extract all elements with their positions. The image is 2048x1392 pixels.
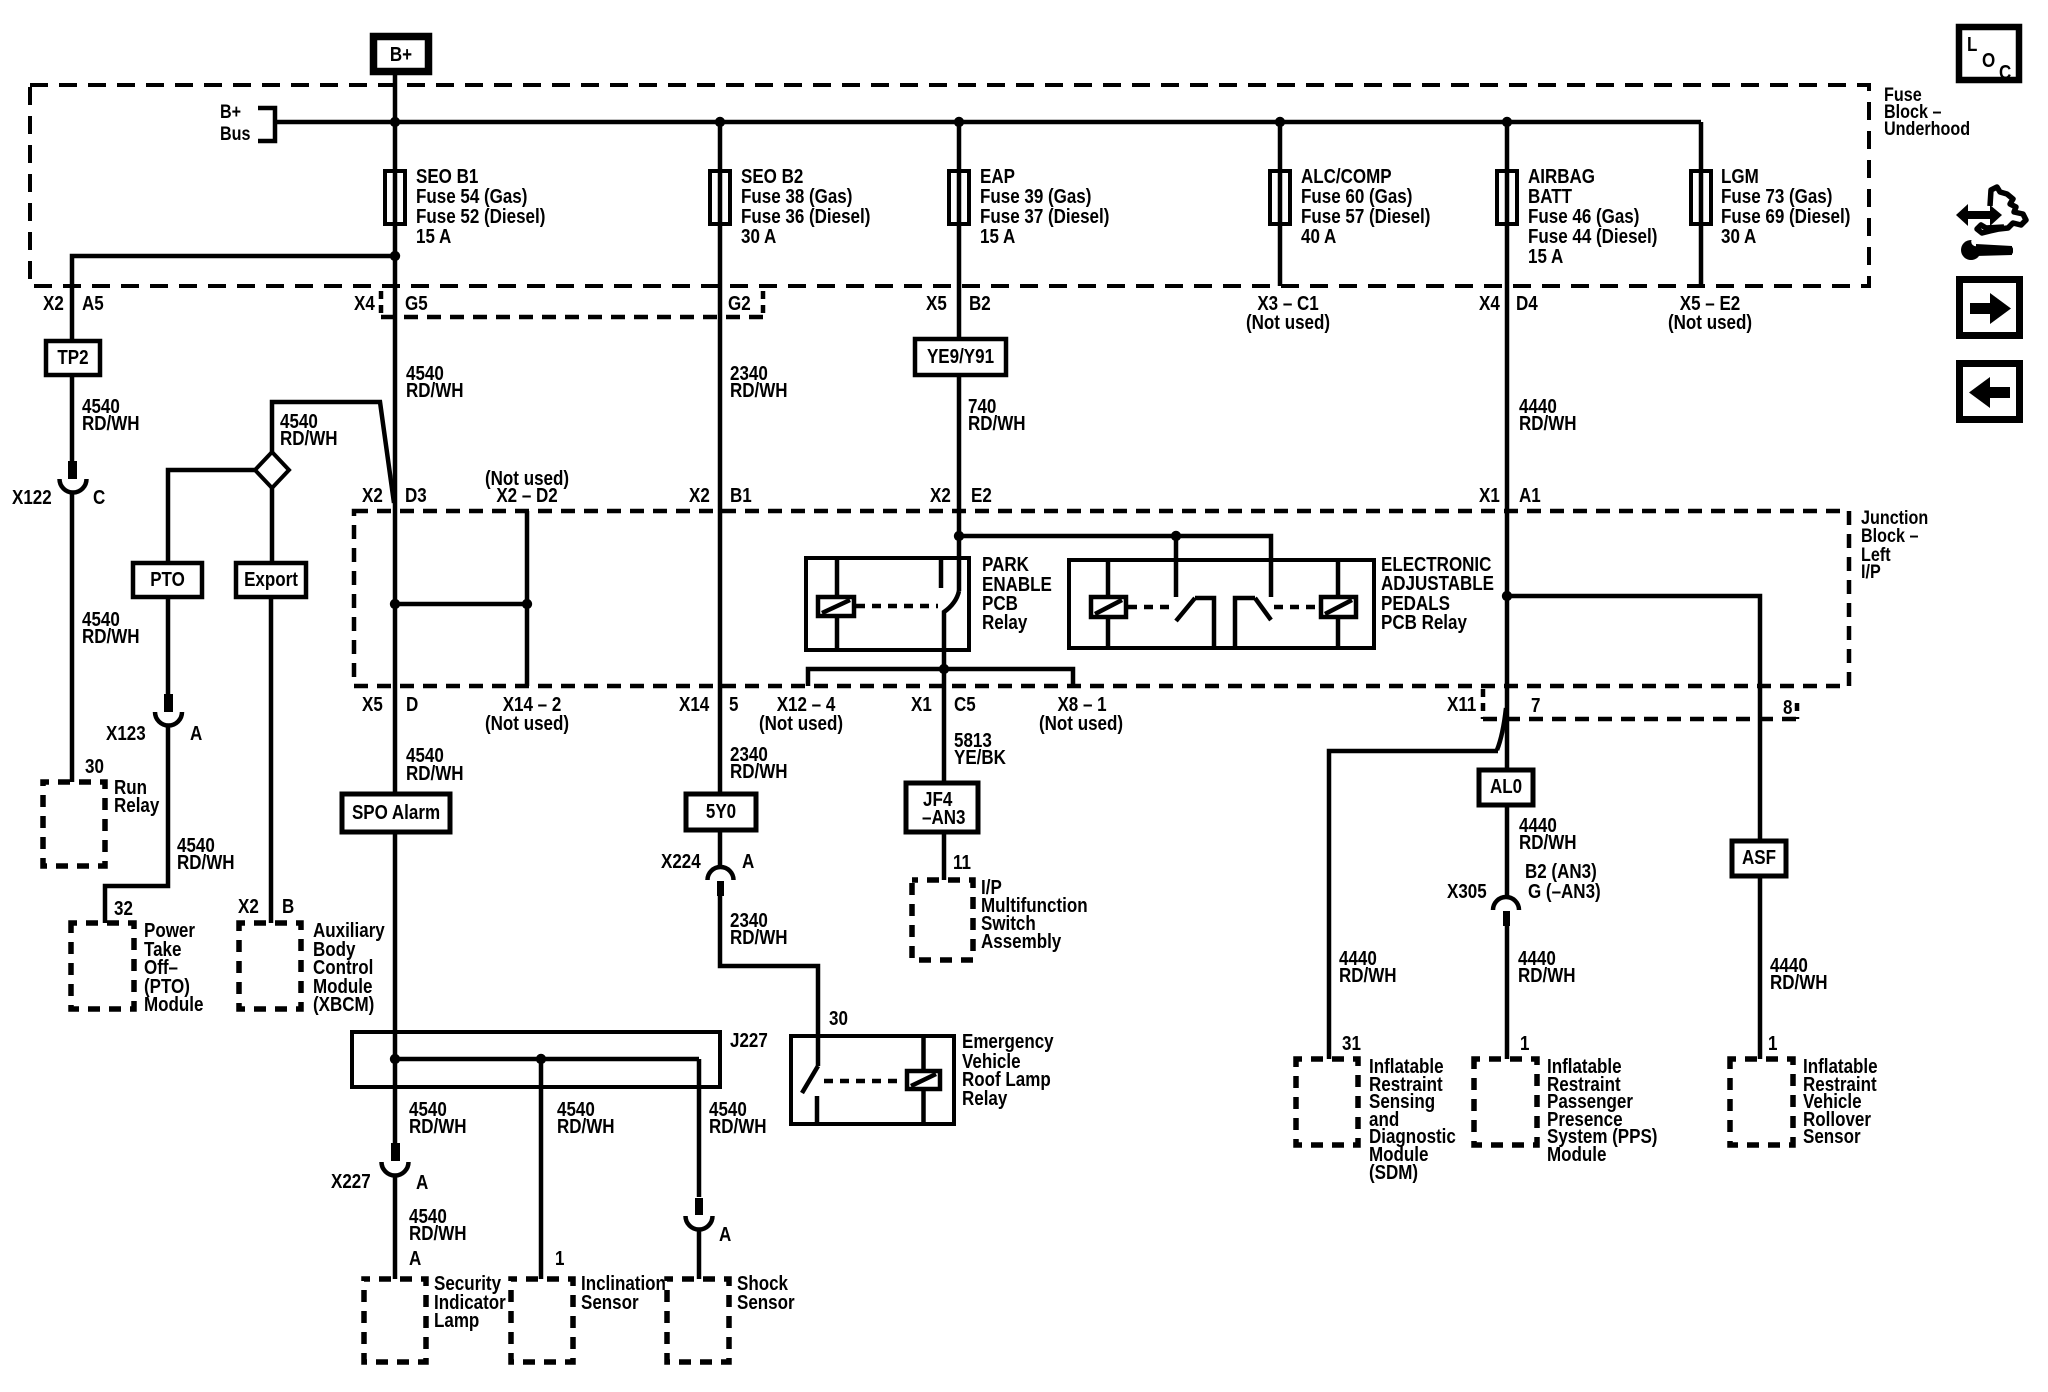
svg-text:X1: X1: [911, 693, 932, 716]
svg-text:A5: A5: [82, 292, 104, 315]
svg-text:RD/WH: RD/WH: [82, 625, 140, 648]
svg-text:Sensor: Sensor: [737, 1291, 795, 1314]
svg-text:YE/BK: YE/BK: [954, 746, 1006, 769]
svg-text:RD/WH: RD/WH: [1339, 964, 1397, 987]
svg-text:RD/WH: RD/WH: [177, 851, 235, 874]
svg-text:G5: G5: [405, 292, 428, 315]
svg-text:1: 1: [1520, 1032, 1529, 1055]
svg-text:RD/WH: RD/WH: [730, 379, 788, 402]
svg-text:B+: B+: [390, 43, 412, 66]
svg-text:1: 1: [1768, 1032, 1777, 1055]
svg-text:SPO Alarm: SPO Alarm: [352, 801, 440, 824]
svg-text:RD/WH: RD/WH: [968, 412, 1026, 435]
svg-text:Relay: Relay: [982, 611, 1028, 634]
svg-text:G (–AN3): G (–AN3): [1528, 880, 1601, 903]
svg-text:D: D: [406, 693, 418, 716]
svg-text:L: L: [1967, 33, 1977, 56]
svg-text:Assembly: Assembly: [981, 930, 1062, 953]
svg-text:RD/WH: RD/WH: [406, 762, 464, 785]
svg-text:X122: X122: [12, 486, 52, 509]
svg-text:X2: X2: [238, 895, 259, 918]
svg-text:X11: X11: [1447, 693, 1476, 716]
svg-text:X2 – D2: X2 – D2: [496, 484, 557, 507]
svg-text:C: C: [1999, 61, 2011, 84]
svg-text:E2: E2: [971, 484, 992, 507]
svg-text:(Not used): (Not used): [1039, 712, 1123, 735]
svg-text:YE9/Y91: YE9/Y91: [927, 345, 994, 368]
svg-text:RD/WH: RD/WH: [406, 379, 464, 402]
svg-text:11: 11: [953, 851, 971, 874]
svg-text:Underhood: Underhood: [1884, 118, 1970, 140]
svg-text:32: 32: [114, 897, 133, 920]
svg-text:30: 30: [829, 1007, 848, 1030]
svg-text:15 A: 15 A: [416, 225, 451, 248]
svg-text:X227: X227: [331, 1170, 371, 1193]
svg-text:(Not used): (Not used): [485, 712, 569, 735]
svg-text:RD/WH: RD/WH: [1519, 831, 1577, 854]
svg-text:X2: X2: [930, 484, 951, 507]
svg-text:15 A: 15 A: [1528, 245, 1563, 268]
svg-text:B2: B2: [969, 292, 991, 315]
svg-text:A: A: [416, 1171, 428, 1194]
svg-text:G2: G2: [728, 292, 751, 315]
svg-text:Export: Export: [244, 568, 298, 591]
svg-text:(XBCM): (XBCM): [313, 993, 374, 1016]
svg-text:X4: X4: [1479, 292, 1500, 315]
svg-text:RD/WH: RD/WH: [1518, 964, 1576, 987]
svg-text:30 A: 30 A: [741, 225, 776, 248]
svg-text:X2: X2: [43, 292, 64, 315]
svg-text:RD/WH: RD/WH: [557, 1115, 615, 1138]
svg-text:RD/WH: RD/WH: [709, 1115, 767, 1138]
svg-text:RD/WH: RD/WH: [280, 427, 338, 450]
svg-text:5Y0: 5Y0: [706, 800, 736, 823]
svg-text:(Not used): (Not used): [1246, 311, 1330, 334]
svg-text:PTO: PTO: [150, 568, 185, 591]
svg-text:D4: D4: [1516, 292, 1538, 315]
svg-text:RD/WH: RD/WH: [730, 926, 788, 949]
svg-text:1: 1: [555, 1247, 564, 1270]
svg-text:(SDM): (SDM): [1369, 1161, 1418, 1184]
svg-text:RD/WH: RD/WH: [1519, 412, 1577, 435]
svg-text:X1: X1: [1479, 484, 1500, 507]
svg-text:40 A: 40 A: [1301, 225, 1336, 248]
svg-text:–AN3: –AN3: [922, 806, 965, 829]
svg-text:B+: B+: [220, 101, 241, 123]
svg-text:B: B: [282, 895, 294, 918]
svg-text:RD/WH: RD/WH: [409, 1115, 467, 1138]
svg-text:A: A: [409, 1247, 421, 1270]
svg-text:X2: X2: [689, 484, 710, 507]
svg-text:Sensor: Sensor: [581, 1291, 639, 1314]
svg-text:RD/WH: RD/WH: [82, 412, 140, 435]
svg-text:X14: X14: [679, 693, 710, 716]
svg-text:RD/WH: RD/WH: [730, 760, 788, 783]
svg-text:(Not used): (Not used): [1668, 311, 1752, 334]
svg-text:(Not used): (Not used): [759, 712, 843, 735]
svg-text:31: 31: [1342, 1032, 1361, 1055]
svg-text:J227: J227: [730, 1029, 768, 1052]
svg-text:X224: X224: [661, 850, 701, 873]
svg-text:15 A: 15 A: [980, 225, 1015, 248]
svg-text:O: O: [1982, 49, 1995, 72]
svg-text:A1: A1: [1519, 484, 1541, 507]
svg-text:C5: C5: [954, 693, 976, 716]
svg-text:X5: X5: [926, 292, 947, 315]
svg-text:X2: X2: [362, 484, 383, 507]
svg-text:RD/WH: RD/WH: [409, 1222, 467, 1245]
svg-text:ASF: ASF: [1742, 846, 1776, 869]
svg-text:Sensor: Sensor: [1803, 1125, 1861, 1148]
svg-text:Module: Module: [144, 993, 203, 1016]
svg-text:TP2: TP2: [57, 346, 88, 369]
svg-text:A: A: [190, 722, 202, 745]
svg-text:Lamp: Lamp: [434, 1309, 479, 1332]
svg-text:I/P: I/P: [1861, 561, 1881, 583]
svg-text:A: A: [719, 1223, 731, 1246]
svg-text:Module: Module: [1547, 1143, 1606, 1166]
svg-text:B1: B1: [730, 484, 752, 507]
svg-text:30 A: 30 A: [1721, 225, 1756, 248]
svg-text:30: 30: [85, 755, 104, 778]
svg-text:RD/WH: RD/WH: [1770, 971, 1828, 994]
svg-text:X5: X5: [362, 693, 383, 716]
svg-text:7: 7: [1531, 694, 1540, 717]
svg-text:Relay: Relay: [114, 794, 160, 817]
svg-text:A: A: [742, 850, 754, 873]
svg-text:X123: X123: [106, 722, 146, 745]
svg-text:5: 5: [729, 693, 738, 716]
svg-text:C: C: [93, 486, 105, 509]
svg-text:Relay: Relay: [962, 1087, 1008, 1110]
svg-text:D3: D3: [405, 484, 427, 507]
svg-text:X305: X305: [1447, 880, 1487, 903]
svg-text:Bus: Bus: [220, 123, 251, 145]
svg-text:PCB Relay: PCB Relay: [1381, 611, 1468, 634]
svg-text:X4: X4: [354, 292, 375, 315]
svg-text:8: 8: [1783, 696, 1792, 719]
svg-text:AL0: AL0: [1490, 775, 1522, 798]
